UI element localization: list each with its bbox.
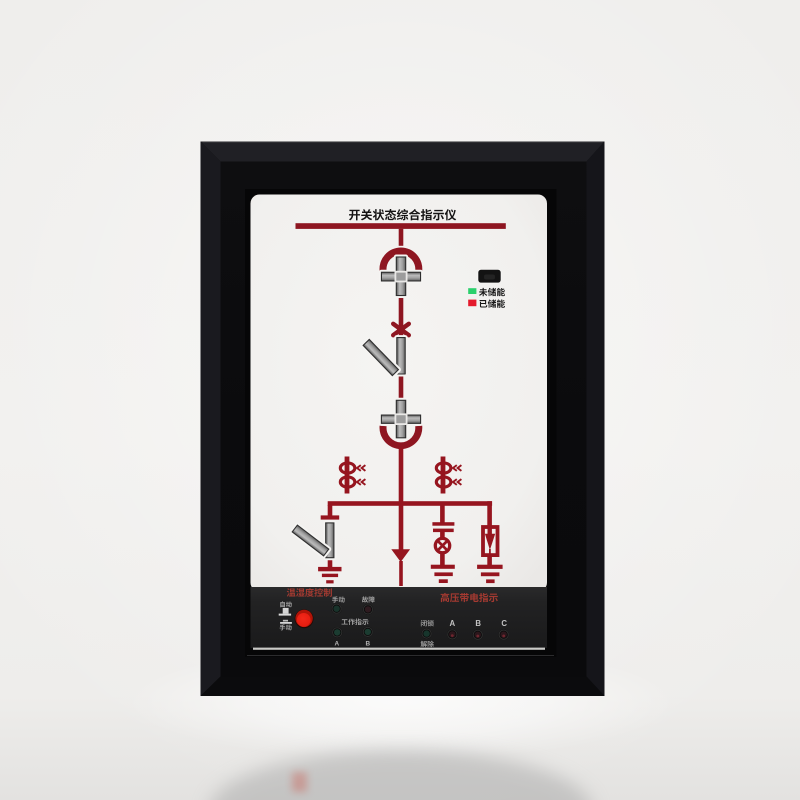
svg-text:B: B: [365, 640, 370, 647]
svg-text:B: B: [475, 619, 481, 628]
svg-text:C: C: [501, 619, 507, 628]
svg-text:A: A: [334, 640, 339, 647]
svg-text:A: A: [449, 619, 455, 628]
